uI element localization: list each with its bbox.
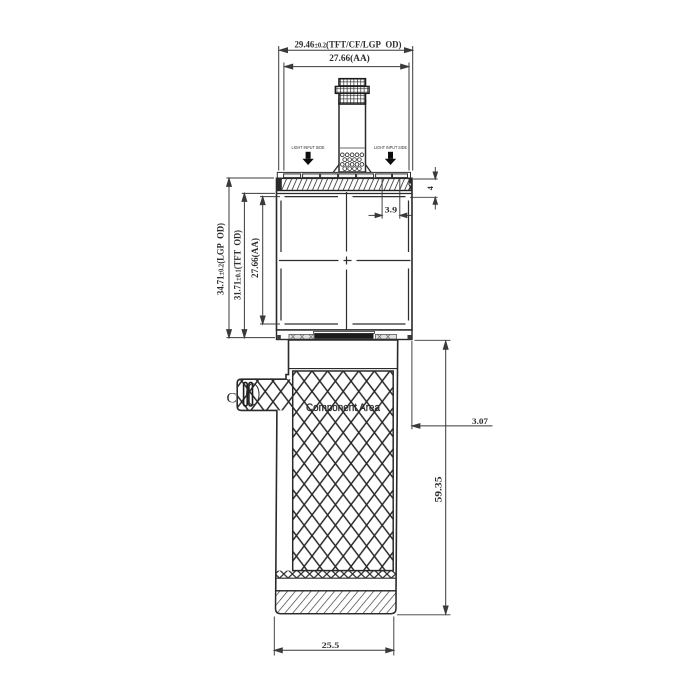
- svg-text:C: C: [226, 391, 236, 407]
- svg-text:3.9: 3.9: [385, 205, 398, 215]
- svg-text:31.71±0.1(TFT OD): 31.71±0.1(TFT OD): [232, 230, 242, 300]
- svg-text:LIGHT INPUT SIDE: LIGHT INPUT SIDE: [292, 145, 325, 150]
- svg-text:3.07: 3.07: [472, 416, 489, 426]
- svg-text:25.5: 25.5: [322, 640, 340, 650]
- svg-text:4: 4: [426, 186, 435, 190]
- svg-text:27.66(AA): 27.66(AA): [329, 53, 370, 64]
- svg-text:59.35: 59.35: [434, 476, 444, 503]
- svg-text:27.66(AA): 27.66(AA): [250, 238, 260, 278]
- svg-text:Component Area: Component Area: [306, 402, 381, 414]
- svg-text:LIGHT INPUT SIDE: LIGHT INPUT SIDE: [374, 145, 407, 150]
- svg-text:34.71±0.2(LGP OD): 34.71±0.2(LGP OD): [216, 223, 226, 295]
- svg-text:29.46±0.2(TFT/CF/LGP OD): 29.46±0.2(TFT/CF/LGP OD): [295, 40, 402, 51]
